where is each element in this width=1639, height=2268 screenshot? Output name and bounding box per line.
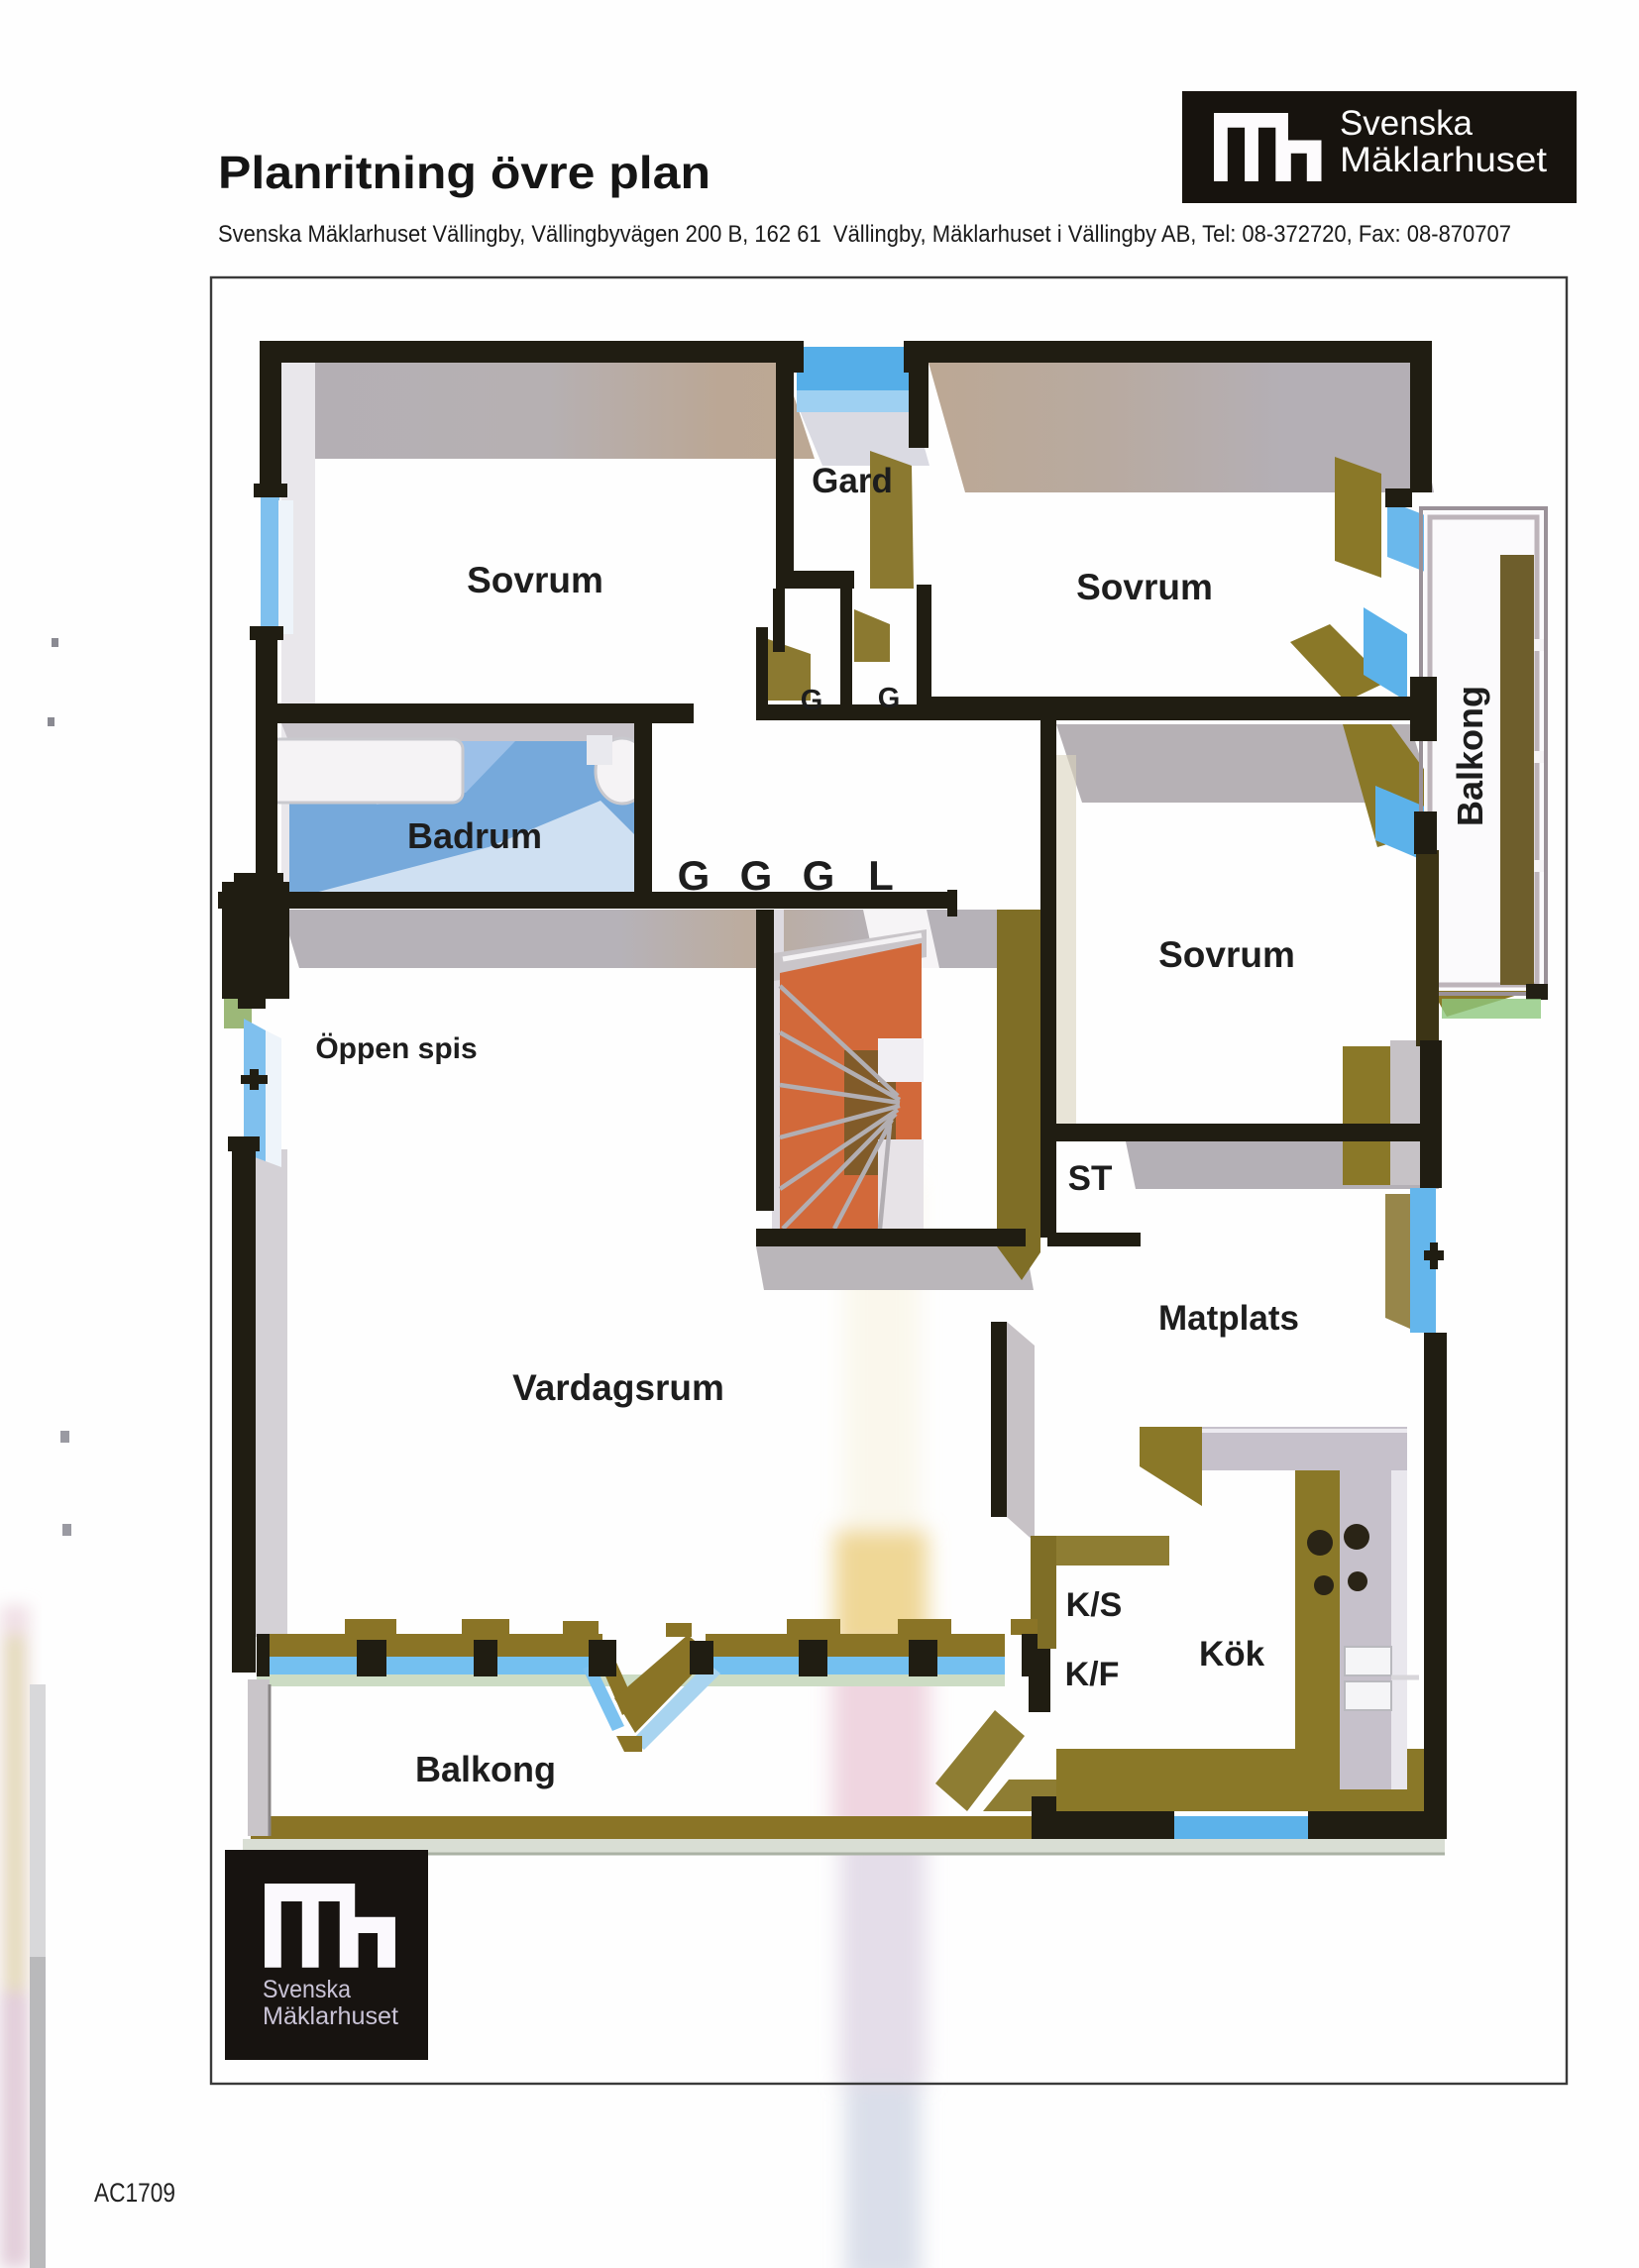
svg-text:Öppen spis: Öppen spis [315,1032,477,1065]
svg-text:Gard: Gard [812,462,893,500]
svg-text:Planritning övre plan: Planritning övre plan [218,147,710,198]
svg-text:Sovrum: Sovrum [1158,934,1295,975]
svg-text:Svenska: Svenska [263,1976,351,2003]
svg-text:Kök: Kök [1199,1635,1265,1674]
svg-text:G: G [678,852,710,899]
svg-text:Svenska: Svenska [1340,104,1474,143]
svg-text:Vardagsrum: Vardagsrum [512,1367,724,1408]
svg-text:Svenska Mäklarhuset Vällingby,: Svenska Mäklarhuset Vällingby, Vällingby… [218,221,1511,248]
svg-text:Balkong: Balkong [415,1749,556,1789]
svg-text:G: G [803,852,835,899]
svg-text:L: L [868,852,894,899]
svg-text:G: G [878,683,901,714]
svg-text:Balkong: Balkong [1450,686,1490,826]
svg-text:G: G [801,685,823,716]
svg-text:G: G [740,852,773,899]
svg-text:Sovrum: Sovrum [1076,567,1213,607]
svg-text:Badrum: Badrum [407,815,542,856]
svg-text:K/S: K/S [1066,1586,1123,1624]
svg-text:Mäklarhuset: Mäklarhuset [263,2002,398,2030]
svg-text:AC1709: AC1709 [94,2178,175,2208]
svg-text:Mäklarhuset: Mäklarhuset [1340,141,1547,179]
svg-text:ST: ST [1068,1159,1113,1198]
svg-text:Matplats: Matplats [1158,1299,1299,1338]
svg-text:K/F: K/F [1065,1656,1120,1693]
svg-text:Sovrum: Sovrum [467,560,603,600]
